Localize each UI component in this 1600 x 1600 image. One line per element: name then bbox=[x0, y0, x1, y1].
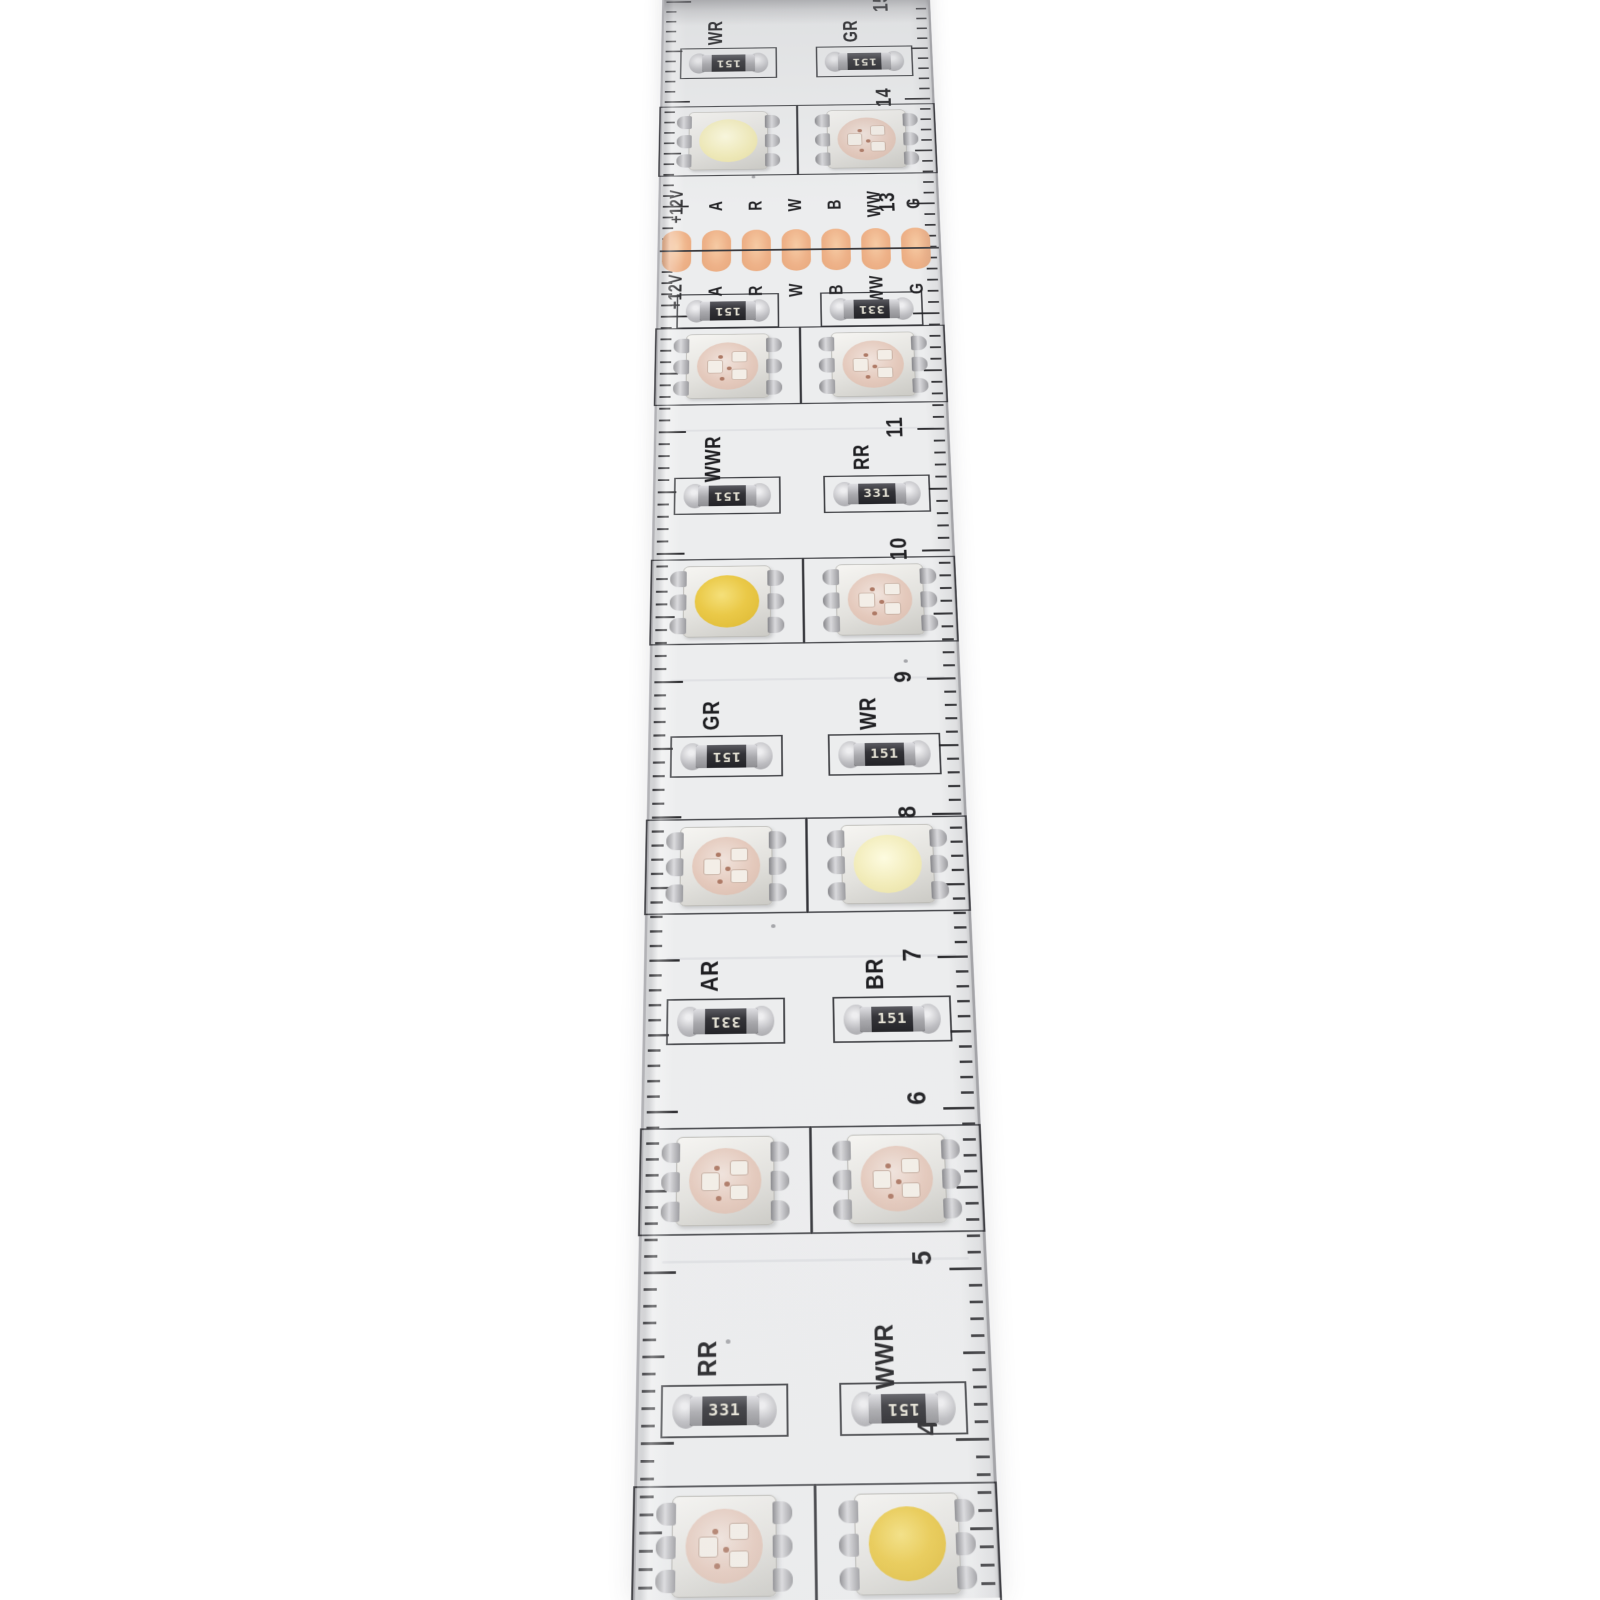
led-pin bbox=[929, 829, 947, 847]
ruler-tick bbox=[936, 500, 947, 502]
led-pin bbox=[656, 1536, 676, 1559]
ruler-tick bbox=[976, 1455, 990, 1458]
ruler-tick bbox=[641, 1425, 655, 1428]
led-lens bbox=[847, 573, 913, 626]
ruler-tick bbox=[665, 71, 675, 73]
led-die bbox=[730, 1160, 749, 1175]
led-pin bbox=[819, 358, 835, 373]
led-lens bbox=[868, 1506, 947, 1582]
led-die bbox=[877, 367, 893, 378]
ruler-tick bbox=[963, 1351, 985, 1354]
ruler-number: 11 bbox=[882, 404, 907, 450]
ruler-tick bbox=[666, 11, 676, 13]
led-lens bbox=[685, 1508, 763, 1584]
smd-led-rgb bbox=[835, 563, 925, 635]
led-pin bbox=[954, 1499, 975, 1522]
led-die bbox=[871, 141, 886, 151]
ruler-tick bbox=[659, 443, 670, 445]
resistor-value: 151 bbox=[887, 1399, 920, 1418]
ruler-tick bbox=[648, 1019, 661, 1022]
led-bond-dot bbox=[717, 879, 722, 884]
pad-label: R bbox=[746, 180, 767, 231]
led-pin bbox=[827, 856, 845, 874]
led-pin bbox=[911, 336, 927, 351]
led-pin bbox=[943, 1198, 962, 1219]
smd-led-warm-white bbox=[854, 1492, 962, 1595]
ruler-tick bbox=[961, 1091, 974, 1094]
ruler-tick bbox=[946, 731, 958, 733]
ruler-tick bbox=[935, 476, 946, 478]
led-pin bbox=[815, 114, 830, 127]
led-bond-dot bbox=[716, 1196, 722, 1201]
led-bond-dot bbox=[720, 377, 725, 381]
led-bond-dot bbox=[896, 1179, 902, 1184]
ruler-tick bbox=[658, 455, 669, 457]
led-die bbox=[707, 360, 723, 374]
ruler-tick bbox=[643, 1305, 656, 1308]
ruler-tick bbox=[666, 21, 676, 23]
led-pin bbox=[920, 591, 937, 607]
led-pin bbox=[839, 1567, 859, 1591]
ruler-tick bbox=[647, 1111, 678, 1114]
ruler-tick bbox=[917, 37, 927, 39]
led-pin bbox=[673, 360, 689, 375]
resistor-label: WR bbox=[704, 7, 728, 59]
ruler-tick bbox=[934, 440, 945, 442]
ruler-tick bbox=[948, 771, 960, 773]
led-pin bbox=[827, 830, 845, 848]
ruler-tick bbox=[953, 912, 965, 914]
resistor-label: WWR bbox=[868, 1311, 901, 1401]
led-bond-dot bbox=[727, 367, 732, 371]
ruler-tick bbox=[928, 290, 939, 292]
ruler-tick bbox=[945, 704, 957, 706]
led-lens bbox=[853, 834, 923, 893]
ruler-tick bbox=[956, 1438, 989, 1441]
ruler-tick bbox=[928, 301, 939, 303]
led-bond-dot bbox=[872, 611, 877, 615]
led-die bbox=[729, 1523, 749, 1540]
ruler-tick bbox=[977, 1473, 991, 1476]
ruler-tick bbox=[947, 758, 959, 760]
led-bond-dot bbox=[857, 129, 862, 132]
pad-label: +12V bbox=[666, 181, 688, 232]
ruler-tick bbox=[659, 408, 670, 410]
led-pin bbox=[670, 571, 687, 587]
resistor-label: RR bbox=[692, 1314, 723, 1404]
ruler-tick bbox=[655, 668, 667, 670]
led-die bbox=[698, 1536, 718, 1557]
ruler-tick bbox=[973, 1386, 987, 1389]
ruler-tick bbox=[927, 677, 956, 679]
ruler-tick bbox=[666, 31, 676, 33]
ruler-tick bbox=[653, 734, 665, 736]
led-bond-dot bbox=[716, 853, 721, 858]
ruler-tick bbox=[665, 101, 690, 103]
ruler-tick bbox=[944, 690, 956, 692]
led-lens bbox=[699, 119, 758, 163]
led-pin bbox=[665, 884, 683, 902]
led-bond-dot bbox=[885, 1163, 891, 1168]
led-pin bbox=[819, 379, 835, 394]
ruler-tick bbox=[648, 1049, 661, 1052]
ruler-tick bbox=[644, 1271, 676, 1274]
led-pin bbox=[838, 1500, 858, 1523]
ruler-tick bbox=[658, 479, 669, 481]
led-pin bbox=[670, 594, 687, 610]
led-die bbox=[701, 1172, 720, 1191]
ruler-tick bbox=[650, 916, 662, 918]
via-dot bbox=[752, 176, 756, 179]
smd-led-warm-white bbox=[683, 565, 771, 637]
led-bond-dot bbox=[866, 375, 871, 379]
led-die bbox=[872, 1170, 891, 1189]
ruler-tick bbox=[927, 279, 938, 281]
ruler-tick bbox=[960, 1076, 973, 1079]
ruler-number: 7 bbox=[898, 926, 927, 984]
resistor-value: 151 bbox=[712, 749, 741, 764]
ruler-tick bbox=[937, 524, 948, 526]
resistor-label: AR bbox=[695, 937, 724, 1015]
smd-led-rgb bbox=[831, 332, 916, 397]
ruler-tick bbox=[960, 1060, 973, 1063]
resistor-value: 151 bbox=[870, 747, 899, 762]
ruler-number: 6 bbox=[903, 1067, 932, 1128]
ruler-tick bbox=[905, 98, 930, 100]
ruler-tick bbox=[647, 1095, 660, 1098]
ruler-tick bbox=[649, 989, 662, 992]
ruler-tick bbox=[916, 8, 926, 10]
led-pin bbox=[655, 1570, 675, 1594]
ruler-tick bbox=[972, 1368, 986, 1371]
ruler-tick bbox=[650, 945, 662, 947]
ruler-tick bbox=[666, 41, 676, 43]
led-pin bbox=[833, 1170, 852, 1190]
ruler-tick bbox=[943, 664, 955, 666]
led-pin bbox=[832, 1141, 851, 1161]
smd-led-rgb bbox=[671, 1495, 777, 1598]
led-die bbox=[730, 1185, 749, 1200]
ruler-number: 15 bbox=[869, 0, 892, 22]
led-strip-pcb: 1514131110987654151WR151GR+12VARWBWWG+12… bbox=[632, 0, 1002, 1600]
ruler-tick bbox=[653, 761, 665, 763]
ruler-tick bbox=[644, 1255, 657, 1258]
ruler-tick bbox=[924, 192, 935, 194]
led-pin bbox=[677, 116, 692, 129]
ruler-tick bbox=[949, 1267, 981, 1270]
ruler-tick bbox=[922, 549, 950, 551]
led-pin bbox=[674, 339, 690, 354]
ruler-tick bbox=[971, 1334, 984, 1337]
ruler-tick bbox=[924, 213, 935, 215]
led-bond-dot bbox=[712, 1529, 718, 1535]
led-pin bbox=[666, 832, 684, 850]
ruler-tick bbox=[917, 428, 944, 430]
led-bond-dot bbox=[863, 353, 868, 357]
led-pin bbox=[677, 135, 692, 148]
ruler-tick bbox=[650, 930, 662, 932]
led-bond-dot bbox=[870, 587, 875, 591]
led-lens bbox=[860, 1145, 934, 1212]
ruler-tick bbox=[657, 528, 668, 530]
led-die bbox=[877, 349, 893, 360]
led-pin bbox=[942, 1168, 961, 1188]
led-pin bbox=[956, 1532, 977, 1555]
via-dot bbox=[771, 924, 775, 928]
led-die bbox=[902, 1182, 921, 1197]
ruler-tick bbox=[917, 27, 927, 29]
ruler-tick bbox=[927, 268, 938, 270]
ruler-tick bbox=[658, 467, 669, 469]
ruler-tick bbox=[647, 1080, 660, 1083]
led-pin bbox=[673, 381, 689, 396]
led-die bbox=[731, 869, 749, 883]
ruler-tick bbox=[923, 181, 934, 183]
ruler-tick bbox=[949, 799, 961, 801]
resistor-value: 151 bbox=[877, 1011, 908, 1027]
ruler-tick bbox=[642, 1390, 656, 1393]
led-die bbox=[732, 369, 748, 380]
ruler-tick bbox=[918, 67, 928, 69]
led-lens bbox=[694, 575, 759, 628]
resistor-value: 151 bbox=[714, 489, 741, 502]
ruler-tick bbox=[654, 708, 666, 710]
pad-label: W bbox=[785, 179, 807, 230]
resistor-value: 151 bbox=[716, 58, 741, 69]
ruler-tick bbox=[954, 926, 966, 928]
led-pin bbox=[666, 858, 684, 876]
led-bond-dot bbox=[718, 355, 723, 359]
smd-led-rgb bbox=[826, 109, 907, 168]
led-pin bbox=[839, 1534, 859, 1557]
ruler-tick bbox=[932, 404, 943, 406]
ruler-tick bbox=[935, 463, 946, 465]
led-die bbox=[858, 593, 875, 608]
pad-label: A bbox=[706, 180, 728, 231]
ruler-tick bbox=[934, 451, 945, 453]
photo-canvas: 1514131110987654151WR151GR+12VARWBWWG+12… bbox=[0, 0, 1600, 1600]
ruler-tick bbox=[959, 1045, 972, 1048]
ruler-tick bbox=[649, 974, 662, 977]
ruler-tick bbox=[956, 970, 969, 972]
resistor-label: GR bbox=[838, 5, 863, 57]
ruler-tick bbox=[969, 1284, 982, 1287]
ruler-tick bbox=[955, 941, 968, 943]
ruler-tick bbox=[937, 512, 948, 514]
ruler-tick bbox=[665, 91, 675, 93]
led-pin bbox=[912, 357, 928, 372]
pad-label: W bbox=[786, 264, 808, 317]
ruler-tick bbox=[958, 1015, 971, 1018]
smd-led-rgb bbox=[686, 333, 770, 398]
led-strip: 1514131110987654151WR151GR+12VARWBWWG+12… bbox=[0, 0, 1600, 1600]
led-die bbox=[731, 848, 748, 862]
ruler-tick bbox=[666, 1, 691, 3]
ruler-tick bbox=[957, 1000, 970, 1003]
ruler-tick bbox=[911, 47, 928, 49]
led-die bbox=[901, 1158, 920, 1173]
ruler-tick bbox=[658, 503, 669, 505]
led-pin bbox=[656, 1503, 676, 1526]
led-bond-dot bbox=[723, 1547, 729, 1553]
ruler-tick bbox=[643, 1322, 656, 1325]
led-pin bbox=[815, 152, 830, 165]
led-pin bbox=[822, 569, 839, 585]
led-pin bbox=[930, 855, 948, 873]
ruler-tick bbox=[641, 1407, 655, 1410]
led-pin bbox=[661, 1202, 680, 1223]
ruler-tick bbox=[655, 655, 667, 657]
led-lens bbox=[837, 117, 897, 160]
led-pin bbox=[941, 1139, 960, 1159]
ruler-tick bbox=[649, 959, 679, 962]
ruler-tick bbox=[654, 681, 683, 683]
resistor-value: 331 bbox=[863, 487, 891, 500]
led-pin bbox=[815, 133, 830, 146]
led-pin bbox=[921, 615, 938, 631]
resistor-label: WR bbox=[854, 678, 883, 749]
ruler-tick bbox=[918, 57, 928, 59]
ruler-tick bbox=[659, 431, 686, 433]
smd-led-rgb bbox=[676, 1136, 775, 1227]
smd-led-rgb bbox=[679, 826, 772, 906]
resistor-value: 151 bbox=[715, 305, 741, 317]
pad-label: WW bbox=[863, 178, 886, 229]
led-lens bbox=[689, 1148, 762, 1215]
resistor-value: 151 bbox=[852, 56, 877, 67]
resistor-value: 331 bbox=[708, 1401, 741, 1420]
resistor-label: WWR bbox=[700, 427, 726, 490]
led-bond-dot bbox=[859, 149, 864, 152]
ruler-tick bbox=[919, 88, 929, 90]
smd-led-rgb bbox=[847, 1134, 948, 1225]
pad-label: G bbox=[903, 178, 926, 229]
ruler-tick bbox=[648, 1065, 661, 1068]
led-bond-dot bbox=[888, 1194, 894, 1199]
led-die bbox=[853, 358, 869, 372]
ruler-tick bbox=[945, 717, 957, 719]
ruler-tick bbox=[970, 1301, 983, 1304]
ruler-number: 5 bbox=[908, 1226, 938, 1291]
ruler-tick bbox=[929, 488, 948, 490]
led-pin bbox=[823, 592, 840, 608]
ruler-tick bbox=[948, 785, 960, 787]
ruler-tick bbox=[652, 789, 664, 791]
led-lens bbox=[842, 340, 905, 388]
ruler-tick bbox=[657, 553, 685, 555]
led-pin bbox=[818, 337, 834, 352]
led-die bbox=[870, 125, 885, 135]
ruler-tick bbox=[640, 1460, 654, 1463]
led-bond-dot bbox=[714, 1563, 720, 1569]
led-lens bbox=[697, 342, 759, 390]
resistor-value: 331 bbox=[858, 303, 885, 315]
led-pin bbox=[823, 616, 840, 632]
ruler-tick bbox=[943, 1107, 974, 1110]
led-pin bbox=[661, 1172, 680, 1192]
led-pin bbox=[957, 1566, 978, 1590]
ruler-number: 9 bbox=[890, 651, 917, 703]
led-die bbox=[732, 351, 748, 362]
ruler-tick bbox=[654, 694, 666, 696]
led-bond-dot bbox=[714, 1166, 720, 1171]
led-die bbox=[703, 858, 721, 875]
led-die bbox=[847, 133, 862, 145]
ruler-tick bbox=[970, 1317, 983, 1320]
ruler-tick bbox=[925, 224, 936, 226]
resistor-label: GR bbox=[698, 680, 726, 751]
via-dot bbox=[726, 1339, 731, 1344]
led-pin bbox=[676, 154, 691, 167]
ruler-tick bbox=[957, 985, 970, 988]
smd-led-cool-white bbox=[688, 111, 768, 170]
ruler-tick bbox=[939, 744, 959, 746]
pad-label: B bbox=[824, 179, 846, 230]
led-lens bbox=[692, 836, 760, 895]
led-pin bbox=[662, 1143, 681, 1163]
ruler-tick bbox=[919, 77, 929, 79]
ruler-tick bbox=[933, 416, 944, 418]
ruler-tick bbox=[657, 516, 668, 518]
led-die bbox=[884, 602, 901, 614]
led-pin bbox=[669, 618, 686, 634]
led-die bbox=[884, 583, 901, 595]
ruler-tick bbox=[644, 1288, 657, 1291]
resistor-value: 331 bbox=[711, 1013, 741, 1029]
led-pin bbox=[833, 1199, 852, 1220]
ruler-tick bbox=[974, 1403, 988, 1406]
ruler-tick bbox=[642, 1355, 664, 1358]
led-bond-dot bbox=[866, 139, 871, 142]
ruler-tick bbox=[653, 775, 665, 777]
ruler-tick bbox=[643, 1339, 656, 1342]
led-bond-dot bbox=[879, 600, 884, 604]
ruler-tick bbox=[659, 419, 670, 421]
led-die bbox=[729, 1550, 749, 1568]
ruler-tick bbox=[943, 651, 955, 653]
ruler-tick bbox=[640, 1478, 654, 1481]
ruler-tick bbox=[938, 537, 950, 539]
ruler-tick bbox=[654, 721, 666, 723]
ruler-tick bbox=[649, 1004, 662, 1007]
ruler-tick bbox=[967, 1234, 980, 1237]
ruler-tick bbox=[968, 1251, 981, 1254]
ruler-tick bbox=[652, 803, 664, 805]
ruler-tick bbox=[916, 18, 926, 20]
ruler-tick bbox=[938, 955, 968, 958]
ruler-tick bbox=[642, 1373, 655, 1376]
led-bond-dot bbox=[872, 365, 877, 369]
resistor-label: BR bbox=[860, 935, 891, 1013]
ruler-tick bbox=[950, 1030, 971, 1033]
resistor-label: RR bbox=[848, 425, 875, 488]
led-pin bbox=[931, 881, 949, 899]
ruler-tick bbox=[641, 1442, 674, 1445]
ruler-tick bbox=[665, 61, 675, 63]
smd-led-cool-white bbox=[841, 824, 936, 904]
ruler-tick bbox=[975, 1420, 989, 1423]
ruler-tick bbox=[644, 1239, 657, 1242]
led-pin bbox=[828, 882, 846, 900]
ruler-tick bbox=[657, 540, 668, 542]
ruler-tick bbox=[665, 81, 675, 83]
